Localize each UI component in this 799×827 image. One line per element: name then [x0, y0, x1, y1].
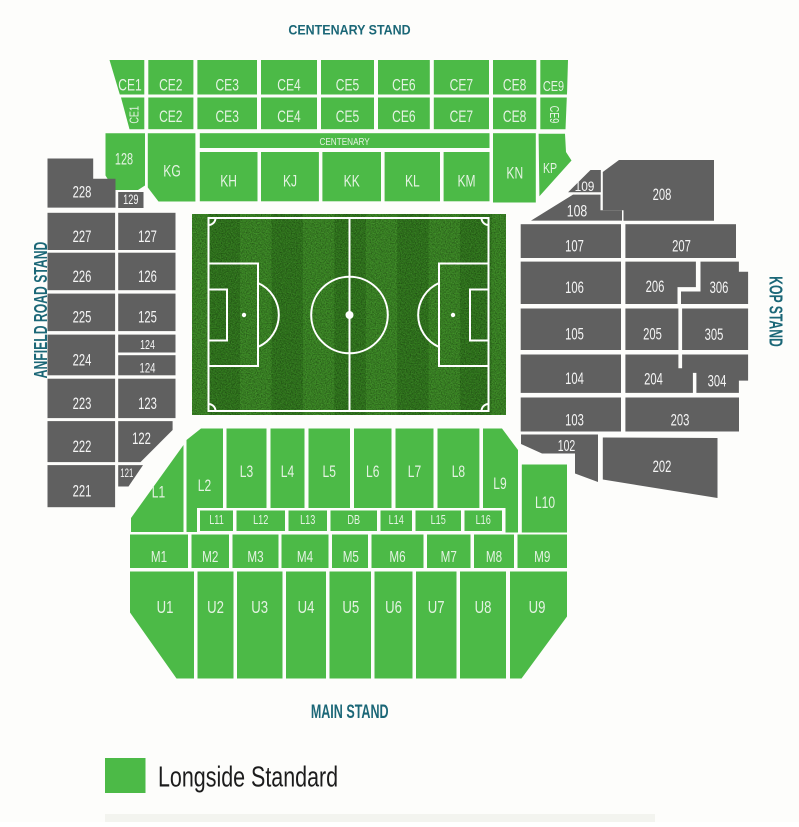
svg-text:305: 305 [705, 325, 724, 344]
svg-text:L16: L16 [476, 514, 491, 528]
svg-text:Longside Standard: Longside Standard [158, 761, 338, 793]
svg-text:221: 221 [73, 481, 92, 500]
svg-text:L14: L14 [389, 514, 404, 528]
svg-text:U3: U3 [251, 598, 268, 617]
svg-text:DB: DB [347, 514, 360, 528]
svg-text:L7: L7 [408, 463, 421, 481]
svg-text:M3: M3 [247, 547, 263, 565]
svg-text:CE1: CE1 [118, 77, 141, 95]
svg-text:L4: L4 [281, 463, 294, 481]
svg-text:U8: U8 [475, 598, 492, 617]
svg-text:M6: M6 [389, 547, 405, 565]
svg-text:CE7: CE7 [450, 108, 473, 126]
svg-text:CENTENARY: CENTENARY [319, 135, 370, 147]
svg-text:U7: U7 [428, 598, 445, 617]
svg-text:M4: M4 [297, 547, 313, 565]
svg-text:L6: L6 [366, 463, 379, 481]
svg-text:208: 208 [653, 185, 672, 204]
svg-text:M8: M8 [486, 547, 502, 565]
svg-text:CE4: CE4 [277, 77, 300, 95]
svg-text:U2: U2 [207, 598, 224, 617]
svg-text:KN: KN [506, 165, 523, 183]
svg-text:105: 105 [565, 324, 584, 343]
svg-text:CE8: CE8 [503, 108, 526, 126]
svg-text:L11: L11 [209, 514, 224, 528]
svg-text:L8: L8 [452, 463, 465, 481]
svg-text:124: 124 [140, 338, 155, 352]
svg-text:227: 227 [73, 227, 92, 246]
svg-text:222: 222 [73, 437, 92, 456]
svg-text:107: 107 [565, 236, 584, 255]
svg-text:224: 224 [73, 350, 92, 369]
svg-text:226: 226 [73, 267, 92, 286]
svg-text:CE9: CE9 [543, 77, 564, 94]
svg-text:L2: L2 [198, 477, 211, 495]
svg-text:KL: KL [405, 173, 420, 191]
svg-text:L9: L9 [493, 475, 506, 493]
svg-text:KJ: KJ [283, 173, 297, 191]
svg-text:L1: L1 [152, 484, 165, 502]
svg-text:CE3: CE3 [215, 108, 238, 126]
svg-text:304: 304 [708, 371, 727, 390]
svg-text:L3: L3 [240, 463, 253, 481]
svg-text:109: 109 [575, 178, 595, 194]
svg-text:CE9: CE9 [547, 106, 561, 124]
svg-text:108: 108 [567, 203, 587, 221]
svg-text:103: 103 [565, 410, 584, 429]
svg-text:129: 129 [123, 193, 138, 207]
svg-text:CE4: CE4 [277, 108, 300, 126]
svg-text:L5: L5 [323, 463, 336, 481]
svg-text:122: 122 [132, 429, 151, 448]
svg-text:M9: M9 [534, 547, 550, 565]
svg-text:126: 126 [138, 267, 157, 286]
svg-text:124: 124 [140, 360, 156, 376]
svg-text:207: 207 [672, 236, 691, 255]
svg-text:228: 228 [73, 182, 92, 201]
svg-text:M7: M7 [441, 547, 457, 565]
svg-text:KH: KH [220, 173, 237, 191]
svg-text:121: 121 [120, 468, 133, 481]
svg-text:CENTENARY STAND: CENTENARY STAND [288, 22, 411, 38]
svg-text:U9: U9 [529, 598, 546, 617]
svg-text:104: 104 [565, 369, 584, 388]
svg-text:U5: U5 [342, 598, 359, 617]
svg-text:125: 125 [138, 307, 157, 326]
svg-text:CE2: CE2 [159, 108, 182, 126]
svg-text:KM: KM [457, 173, 475, 191]
svg-text:123: 123 [138, 394, 157, 413]
svg-text:L13: L13 [300, 514, 315, 528]
svg-text:128: 128 [115, 149, 133, 168]
svg-text:KK: KK [344, 173, 360, 191]
svg-text:M5: M5 [343, 547, 359, 565]
svg-text:CE6: CE6 [392, 77, 415, 95]
svg-text:205: 205 [643, 324, 662, 343]
svg-text:204: 204 [644, 369, 663, 388]
svg-text:M1: M1 [151, 547, 167, 565]
svg-text:CE2: CE2 [159, 77, 182, 95]
svg-text:KG: KG [163, 163, 180, 181]
svg-text:306: 306 [710, 278, 729, 297]
svg-text:127: 127 [138, 227, 157, 246]
svg-text:223: 223 [73, 394, 92, 413]
svg-text:KOP STAND: KOP STAND [765, 276, 785, 347]
svg-text:U1: U1 [157, 598, 174, 617]
svg-text:202: 202 [653, 457, 672, 476]
svg-text:206: 206 [646, 277, 665, 296]
svg-text:U6: U6 [385, 598, 402, 617]
svg-text:CE5: CE5 [336, 108, 359, 126]
svg-text:CE3: CE3 [215, 77, 238, 95]
svg-text:CE1: CE1 [128, 106, 142, 124]
svg-text:102: 102 [558, 437, 576, 455]
svg-text:225: 225 [73, 307, 92, 326]
svg-text:CE6: CE6 [392, 108, 415, 126]
svg-text:L15: L15 [431, 514, 446, 528]
svg-text:CE7: CE7 [450, 77, 473, 95]
svg-text:L10: L10 [535, 494, 555, 512]
svg-text:CE8: CE8 [503, 77, 526, 95]
svg-text:106: 106 [565, 278, 584, 297]
svg-text:MAIN STAND: MAIN STAND [311, 701, 389, 722]
svg-text:M2: M2 [202, 547, 218, 565]
svg-text:CE5: CE5 [336, 77, 359, 95]
svg-text:203: 203 [671, 410, 690, 429]
svg-text:L12: L12 [253, 514, 268, 528]
svg-text:U4: U4 [298, 598, 315, 617]
svg-text:KP: KP [543, 161, 557, 177]
